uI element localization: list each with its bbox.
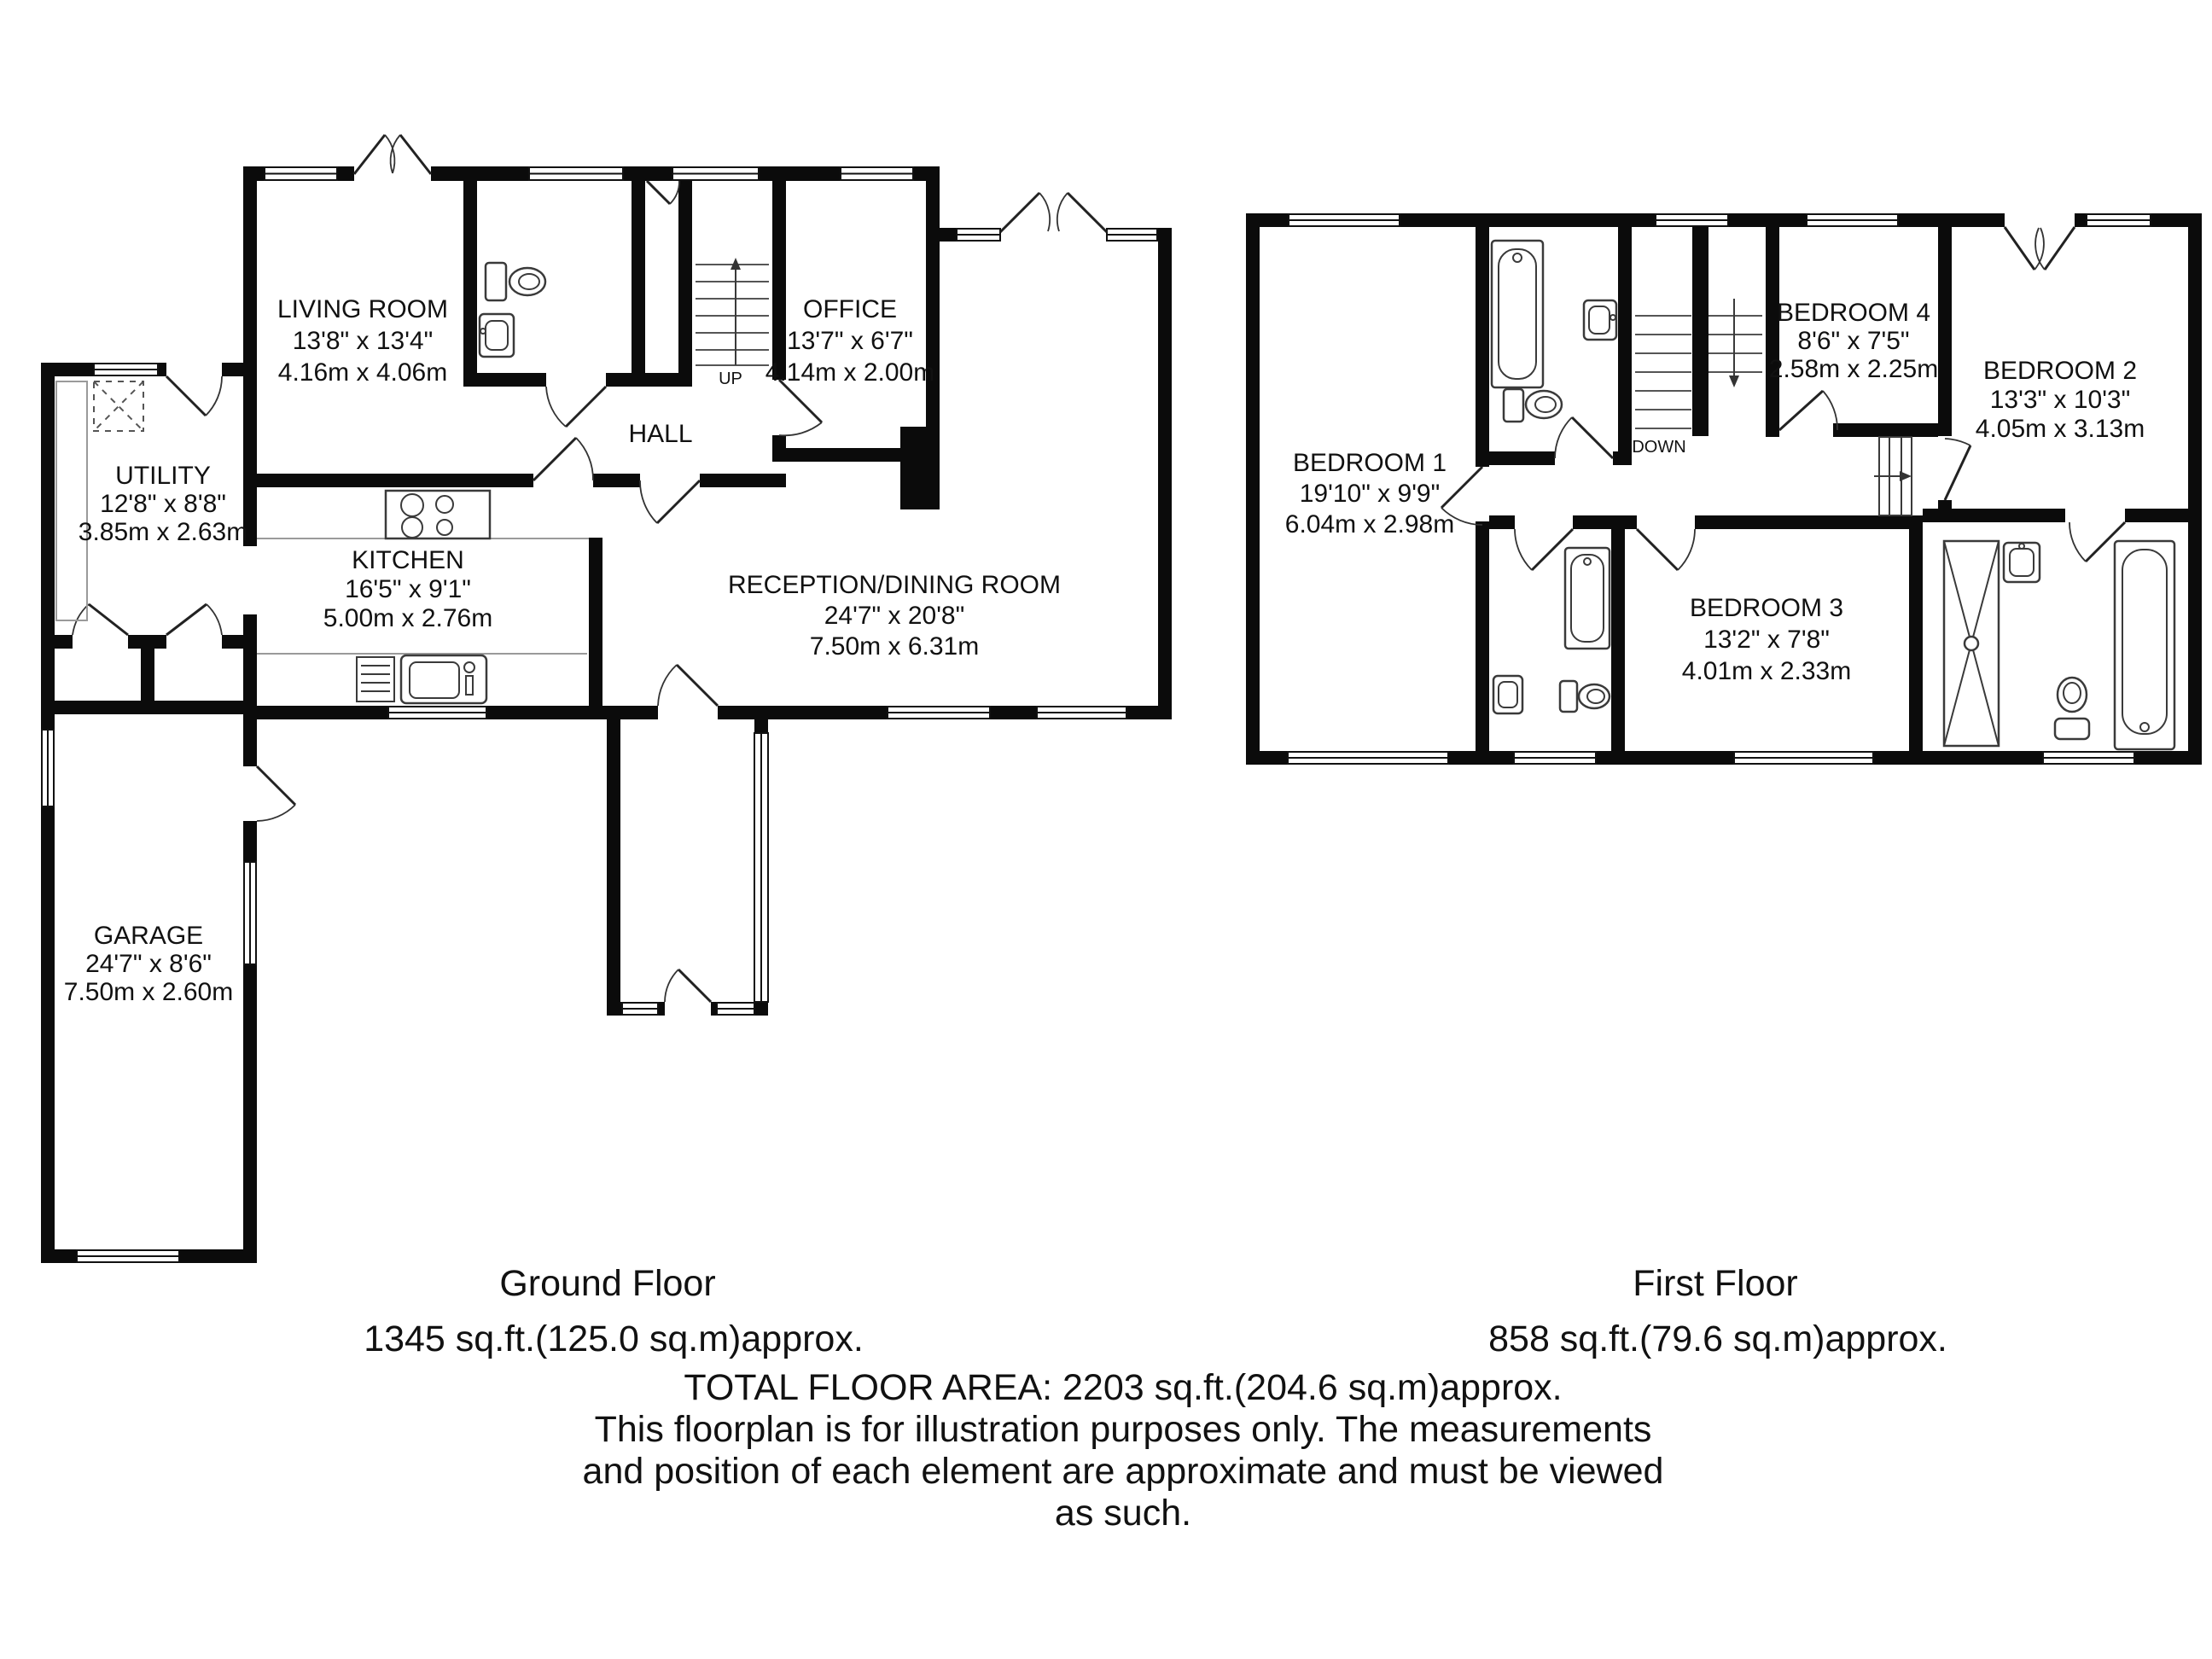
window — [244, 862, 256, 964]
ground-floor-walls — [41, 166, 1172, 1263]
stairs-down-label: DOWN — [1632, 438, 1685, 457]
disclaimer-line1: This floorplan is for illustration purpo… — [595, 1409, 1652, 1450]
shower-icon — [1944, 541, 1999, 746]
window — [2087, 214, 2151, 226]
svg-text:UTILITY: UTILITY — [115, 462, 211, 490]
window — [1807, 214, 1898, 226]
room-utility: UTILITY 12'8" x 8'8" 3.85m x 2.63m — [79, 462, 247, 546]
footer: Ground Floor 1345 sq.ft.(125.0 sq.m)appr… — [364, 1263, 1947, 1534]
ground-floor-area: 1345 sq.ft.(125.0 sq.m)approx. — [364, 1318, 864, 1359]
window — [1734, 752, 1873, 764]
sink-icon — [2004, 543, 2040, 582]
svg-text:8'6" x 7'5": 8'6" x 7'5" — [1797, 327, 1909, 355]
door-cupboard — [647, 181, 679, 204]
chimney-breast — [900, 427, 940, 509]
svg-text:HALL: HALL — [628, 420, 692, 448]
room-living-room: LIVING ROOM 13'8" x 13'4" 4.16m x 4.06m — [277, 295, 448, 387]
kitchen-sink-icon — [257, 654, 587, 703]
svg-text:2.58m x 2.25m: 2.58m x 2.25m — [1769, 355, 1938, 383]
window — [957, 229, 1000, 241]
floorplan-image: UP — [0, 0, 2212, 1659]
door-porch-exterior — [665, 969, 711, 1002]
room-bedroom1: BEDROOM 1 19'10" x 9'9" 6.04m x 2.98m — [1285, 449, 1454, 538]
svg-text:KITCHEN: KITCHEN — [352, 546, 464, 574]
door-garage-side — [257, 766, 295, 821]
window — [672, 167, 759, 180]
room-garage: GARAGE 24'7" x 8'6" 7.50m x 2.60m — [64, 922, 233, 1006]
window — [754, 733, 768, 1002]
svg-text:24'7" x 8'6": 24'7" x 8'6" — [85, 950, 212, 978]
sink-icon — [1493, 676, 1522, 713]
window — [1514, 752, 1596, 764]
ground-floor-room-labels: LIVING ROOM 13'8" x 13'4" 4.16m x 4.06m … — [64, 295, 1061, 1006]
svg-text:4.05m x 3.13m: 4.05m x 3.13m — [1976, 415, 2145, 443]
svg-text:13'7" x 6'7": 13'7" x 6'7" — [787, 327, 913, 355]
first-floor-area: 858 sq.ft.(79.6 sq.m)approx. — [1488, 1318, 1947, 1359]
window — [622, 1003, 658, 1015]
svg-text:LIVING ROOM: LIVING ROOM — [277, 295, 448, 323]
svg-text:BEDROOM 1: BEDROOM 1 — [1293, 449, 1447, 477]
stairs-up: UP — [696, 258, 769, 388]
window — [1107, 229, 1157, 241]
svg-text:4.01m x 2.33m: 4.01m x 2.33m — [1682, 657, 1851, 685]
room-kitchen: KITCHEN 16'5" x 9'1" 5.00m x 2.76m — [323, 546, 492, 632]
door-reception-porch — [658, 665, 718, 706]
svg-text:3.85m x 2.63m: 3.85m x 2.63m — [79, 518, 247, 546]
french-doors-entrance — [1000, 193, 1107, 232]
window — [1037, 707, 1126, 719]
ground-floor-title: Ground Floor — [499, 1263, 715, 1304]
svg-text:24'7" x 20'8": 24'7" x 20'8" — [824, 602, 965, 630]
stove-icon — [257, 491, 589, 538]
door-bedroom3 — [1637, 529, 1695, 570]
disclaimer-line2: and position of each element are approxi… — [583, 1451, 1664, 1492]
window — [265, 167, 337, 180]
bathtub-icon — [1565, 548, 1610, 649]
svg-text:BEDROOM 4: BEDROOM 4 — [1777, 299, 1930, 327]
disclaimer-line3: as such. — [1055, 1493, 1191, 1534]
svg-text:16'5" x 9'1": 16'5" x 9'1" — [345, 575, 471, 603]
svg-text:13'3" x 10'3": 13'3" x 10'3" — [1990, 386, 2131, 414]
window — [717, 1003, 754, 1015]
svg-text:4.14m x 2.00m: 4.14m x 2.00m — [765, 358, 934, 387]
french-doors-bedroom2 — [2005, 227, 2075, 270]
window — [388, 707, 486, 719]
first-floor-title: First Floor — [1633, 1263, 1798, 1304]
toilet-icon — [1560, 681, 1610, 712]
window — [888, 707, 990, 719]
svg-text:6.04m x 2.98m: 6.04m x 2.98m — [1285, 510, 1454, 538]
toilet-icon — [486, 263, 545, 300]
window — [42, 730, 54, 806]
window — [77, 1250, 179, 1262]
total-floor-area: TOTAL FLOOR AREA: 2203 sq.ft.(204.6 sq.m… — [684, 1367, 1562, 1408]
room-reception: RECEPTION/DINING ROOM 24'7" x 20'8" 7.50… — [728, 571, 1061, 661]
window — [1289, 214, 1400, 226]
svg-text:12'8" x 8'8": 12'8" x 8'8" — [100, 490, 226, 518]
svg-text:5.00m x 2.76m: 5.00m x 2.76m — [323, 604, 492, 632]
svg-text:19'10" x 9'9": 19'10" x 9'9" — [1300, 480, 1441, 508]
window — [2043, 752, 2134, 764]
window — [841, 167, 913, 180]
window — [94, 364, 158, 375]
room-office: OFFICE 13'7" x 6'7" 4.14m x 2.00m — [765, 295, 934, 387]
first-floor-room-labels: BEDROOM 1 19'10" x 9'9" 6.04m x 2.98m BE… — [1285, 299, 2145, 685]
floorplan-page: UP — [0, 0, 2212, 1659]
svg-text:13'2" x 7'8": 13'2" x 7'8" — [1703, 626, 1830, 654]
svg-text:4.16m x 4.06m: 4.16m x 4.06m — [278, 358, 447, 387]
room-bedroom2: BEDROOM 2 13'3" x 10'3" 4.05m x 3.13m — [1976, 357, 2145, 443]
toilet-icon — [2055, 678, 2089, 739]
sink-icon — [480, 314, 514, 357]
door-utility-lobby-right — [166, 604, 222, 635]
bathtub-icon — [1492, 241, 1543, 387]
svg-text:13'8" x 13'4": 13'8" x 13'4" — [293, 327, 434, 355]
window — [529, 167, 623, 180]
svg-text:BEDROOM 2: BEDROOM 2 — [1983, 357, 2137, 385]
window — [1656, 214, 1728, 226]
svg-text:GARAGE: GARAGE — [94, 922, 203, 950]
svg-text:BEDROOM 3: BEDROOM 3 — [1690, 594, 1843, 622]
toilet-icon — [1504, 389, 1562, 422]
window — [1288, 752, 1448, 764]
stairs-up-label: UP — [719, 370, 742, 388]
svg-text:RECEPTION/DINING ROOM: RECEPTION/DINING ROOM — [728, 571, 1061, 599]
svg-text:OFFICE: OFFICE — [803, 295, 897, 323]
room-bedroom3: BEDROOM 3 13'2" x 7'8" 4.01m x 2.33m — [1682, 594, 1851, 685]
airing-cupboard — [1874, 437, 1912, 515]
sink-icon — [1584, 300, 1616, 340]
door-utility-entry — [166, 376, 222, 416]
room-bedroom4: BEDROOM 4 8'6" x 7'5" 2.58m x 2.25m — [1769, 299, 1938, 383]
bathtub-icon — [2115, 541, 2174, 749]
svg-text:7.50m x 2.60m: 7.50m x 2.60m — [64, 978, 233, 1006]
door-wc — [546, 387, 606, 427]
room-hall: HALL — [628, 420, 692, 448]
svg-text:7.50m x 6.31m: 7.50m x 6.31m — [810, 632, 979, 661]
